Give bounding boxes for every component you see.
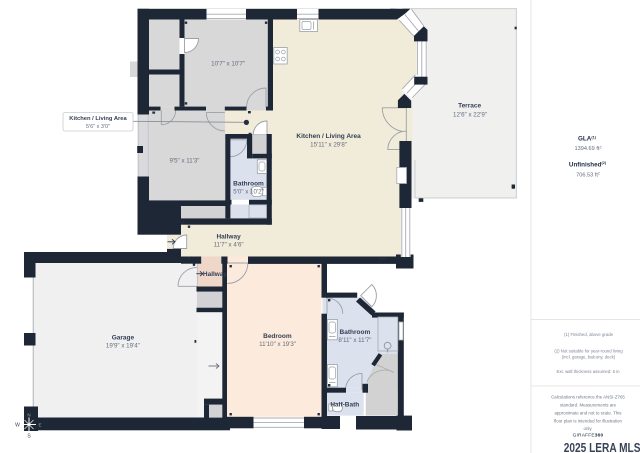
svg-text:19'9" x 19'4": 19'9" x 19'4": [106, 342, 140, 349]
svg-text:Unfinished(2): Unfinished(2): [569, 161, 607, 168]
svg-text:E: E: [38, 422, 41, 427]
svg-text:Bathroom: Bathroom: [340, 329, 371, 336]
svg-text:9'5" x 11'3": 9'5" x 11'3": [169, 157, 199, 164]
svg-text:GIRAFFE360: GIRAFFE360: [573, 432, 604, 438]
svg-text:11'10" x 19'3": 11'10" x 19'3": [259, 341, 296, 348]
svg-text:Ext. wall thickness assumed: 6: Ext. wall thickness assumed: 6 in: [556, 369, 620, 374]
svg-text:Calculations reference the ANS: Calculations reference the ANSI-Z765: [551, 395, 625, 400]
svg-text:706.53 ft2: 706.53 ft2: [576, 172, 600, 179]
svg-text:2025 LERA MLS: 2025 LERA MLS: [564, 441, 640, 453]
svg-text:10'7" x 10'7": 10'7" x 10'7": [211, 60, 245, 67]
svg-text:(2) Not suitable for year-roun: (2) Not suitable for year-round living: [554, 348, 623, 353]
svg-text:(1) Finished, above grade: (1) Finished, above grade: [564, 332, 614, 337]
svg-text:Half-Bath: Half-Bath: [330, 401, 359, 408]
svg-text:Terrace: Terrace: [458, 103, 481, 110]
svg-text:(incl. garage, balcony, deck): (incl. garage, balcony, deck): [562, 355, 616, 360]
svg-text:11'7" x 4'6": 11'7" x 4'6": [214, 242, 244, 249]
svg-text:standard. Measurements are: standard. Measurements are: [560, 403, 617, 408]
svg-text:floor plan is intended for ill: floor plan is intended for illustration: [554, 418, 622, 423]
svg-text:5'0" x 10'2": 5'0" x 10'2": [233, 188, 264, 195]
svg-text:Bathroom: Bathroom: [233, 180, 264, 187]
svg-text:Hallway: Hallway: [216, 234, 241, 241]
svg-text:N: N: [27, 413, 30, 418]
svg-text:W: W: [15, 422, 20, 428]
svg-text:Bedroom: Bedroom: [263, 333, 292, 340]
svg-text:approximate and not to scale.: approximate and not to scale. This: [554, 410, 622, 415]
svg-text:15'11" x 29'8": 15'11" x 29'8": [310, 142, 347, 149]
svg-text:Garage: Garage: [112, 334, 135, 341]
svg-text:1394.69 ft2: 1394.69 ft2: [575, 145, 602, 152]
svg-text:Kitchen / Living Area: Kitchen / Living Area: [296, 133, 361, 140]
svg-text:12'6" x 22'9": 12'6" x 22'9": [453, 111, 487, 118]
svg-text:Hallway: Hallway: [203, 271, 228, 278]
svg-text:8'11" x 11'7": 8'11" x 11'7": [338, 337, 371, 344]
svg-text:5'6" x 3'0": 5'6" x 3'0": [86, 124, 110, 130]
svg-text:only.: only.: [584, 426, 593, 431]
svg-text:Kitchen / Living Area: Kitchen / Living Area: [69, 116, 127, 122]
